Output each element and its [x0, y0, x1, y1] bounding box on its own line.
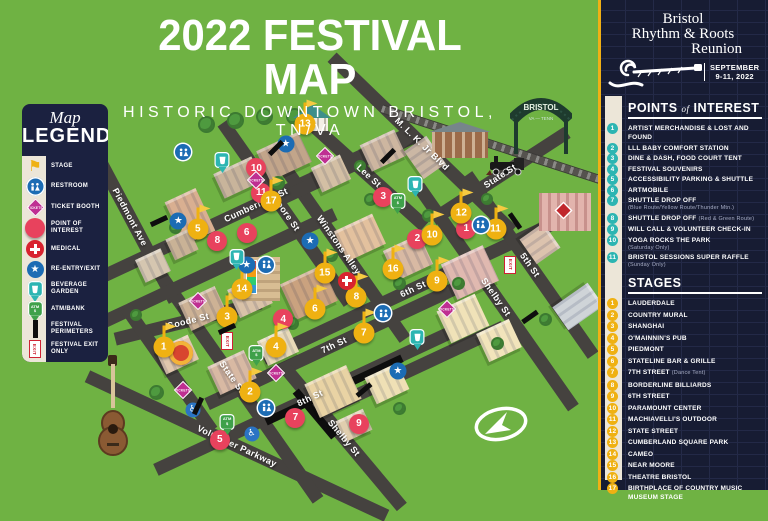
legend-bev-marker: [28, 281, 43, 297]
legend-item-re-entry-exit: ★RE-ENTRY/EXIT: [22, 259, 108, 279]
legend-exit-marker: EXIT: [29, 340, 41, 358]
poi-item-8: 8SHUTTLE DROP OFF (Red & Green Route): [628, 214, 764, 224]
tree: [539, 313, 552, 326]
stage-item-3: 3SHANGHAI: [628, 322, 764, 331]
stage-label: THEATRE BRISTOL: [628, 474, 691, 481]
map-star-marker: ★: [302, 232, 319, 249]
stage-item-8: 8BORDERLINE BILLIARDS: [628, 381, 764, 390]
poi-list: 1ARTIST MERCHANDISE & LOST AND FOUND2LLL…: [628, 124, 764, 269]
map-star-marker: ★: [389, 363, 406, 380]
stage-list: 1LAUDERDALE2COUNTRY MURAL3SHANGHAI4O'MAI…: [628, 299, 764, 502]
map-poi-9-marker: 9: [349, 414, 369, 434]
festival-map-page: { "title": {"line1": "2022 FESTIVAL MAP"…: [0, 0, 768, 490]
atm-icon: ATM$: [24, 301, 46, 317]
rr-icon: [24, 177, 46, 196]
date-days: 9-11, 2022: [710, 72, 759, 81]
stage-number-badge: 14: [607, 449, 618, 460]
stage-item-16: 16THEATRE BRISTOL: [628, 473, 764, 482]
salvation-army-shield: [555, 201, 573, 219]
stage-number-badge: 13: [607, 437, 618, 448]
exit-icon: EXIT: [24, 340, 46, 358]
map-stage-2-marker: 2: [240, 381, 261, 402]
legend-title: Map LEGEND: [22, 104, 108, 154]
stages-header: STAGES: [628, 276, 762, 294]
legend-med-marker: [26, 240, 44, 258]
tree: [491, 337, 504, 350]
stage-label: 7TH STREET: [628, 369, 672, 376]
stage-label: STATE STREET: [628, 428, 678, 435]
logo-line-reunion: Reunion: [598, 42, 768, 57]
tik-icon: TICKETS: [24, 201, 46, 214]
legend-item-beverage-garden: BEVERAGE GARDEN: [22, 279, 108, 299]
points-of-interest-section: POINTS of INTEREST 1ARTIST MERCHANDISE &…: [598, 101, 768, 269]
stage-item-11: 11MACHIAVELLI'S OUTDOOR: [628, 415, 764, 424]
compass-north-arrow: [471, 402, 531, 446]
poi-label: ARTIST MERCHANDISE & LOST AND FOUND: [628, 125, 749, 141]
street-label-7th-st: 7th St: [320, 335, 349, 356]
map-rr-marker: [471, 215, 490, 234]
stage-number-badge: 6: [607, 356, 618, 367]
map-rr-marker: [257, 398, 276, 417]
poi-item-10: 10YOGA ROCKS THE PARK(Saturday Only): [628, 236, 764, 252]
logo-line-bristol: Bristol: [598, 12, 768, 27]
stage-label: MACHIAVELLI'S OUTDOOR: [628, 416, 717, 423]
map-stage-9-marker: 9: [426, 270, 447, 291]
poi-note: (Sunday Only): [628, 262, 764, 269]
poi-number-badge: 6: [607, 185, 618, 196]
stage-number-badge: 3: [607, 321, 618, 332]
poi-number-badge: 2: [607, 143, 618, 154]
legend-item-label: BEVERAGE GARDEN: [46, 282, 106, 296]
legend-item-label: FESTIVAL PERIMETERS: [46, 322, 106, 336]
legend-star-marker: ★: [27, 261, 44, 278]
stage-number-badge: 16: [607, 472, 618, 483]
stage-number-badge: 5: [607, 344, 618, 355]
poi-header-word2: of: [682, 104, 690, 114]
stage-label: CUMBERLAND SQUARE PARK: [628, 439, 728, 446]
poi-number-badge: 1: [607, 123, 618, 134]
svg-text:BRISTOL: BRISTOL: [524, 103, 559, 112]
info-panel: Bristol Rhythm & Roots Reunion SEPTEMBER…: [598, 0, 768, 490]
stage-number-badge: 10: [607, 403, 618, 414]
points-of-interest-header: POINTS of INTEREST: [628, 101, 762, 119]
map-bev-marker: [410, 329, 425, 345]
poi-label: WILL CALL & VOLUNTEER CHECK-IN: [628, 226, 751, 233]
stage-label: O'MAINNIN'S PUB: [628, 335, 687, 342]
stage-item-1: 1LAUDERDALE: [628, 299, 764, 308]
salvation-army-building: [539, 193, 591, 231]
map-stage-8-marker: 8: [346, 287, 367, 308]
stage-item-13: 13CUMBERLAND SQUARE PARK: [628, 438, 764, 447]
poi-inline-note: (Red & Green Route): [698, 216, 754, 222]
map-stage-10-marker: 10: [422, 224, 443, 245]
stage-item-9: 96TH STREET: [628, 392, 764, 401]
map-rr-marker: [257, 255, 276, 274]
stage-number-badge: 11: [607, 414, 618, 425]
stage-item-7: 77TH STREET (Dance Tent): [628, 368, 764, 378]
map-poi-8-marker: 8: [207, 231, 227, 251]
poi-note: (Saturday Only): [628, 245, 764, 252]
map-bar-marker: [521, 310, 539, 324]
poi-label: LLL BABY COMFORT STATION: [628, 145, 729, 152]
map-atm-marker: ATM$: [390, 193, 405, 209]
stage-item-5: 5PIEDMONT: [628, 345, 764, 354]
bev-icon: [24, 281, 46, 297]
svg-text:VA — TENN: VA — TENN: [529, 116, 554, 121]
tree: [452, 277, 465, 290]
stage-item-6: 6STATELINE BAR & GRILLE: [628, 357, 764, 366]
poi-label: ACCESSIBILITY PARKING & SHUTTLE: [628, 176, 753, 183]
poi-label: ARTMOBILE: [628, 187, 668, 194]
poi-label: SHUTTLE DROP OFF: [628, 197, 696, 204]
map-acc-marker: ♿: [244, 426, 259, 441]
legend-item-medical: MEDICAL: [22, 239, 108, 259]
legend-item-label: POINT OF INTEREST: [46, 221, 106, 235]
legend-rr-marker: [26, 177, 45, 196]
stage-item-2: 2COUNTRY MURAL: [628, 311, 764, 320]
legend-item-atm-bank: ATM$ATM/BANK: [22, 299, 108, 319]
map-bev-marker: [229, 249, 244, 265]
stage-label: COUNTRY MURAL: [628, 312, 688, 319]
tree: [130, 309, 142, 321]
poi-item-5: 5ACCESSIBILITY PARKING & SHUTTLE: [628, 175, 764, 184]
legend-item-point-of-interest: POINT OF INTEREST: [22, 217, 108, 239]
poi-item-3: 3DINE & DASH, FOOD COURT TENT: [628, 154, 764, 163]
stage-number-badge: 4: [607, 333, 618, 344]
poi-number-badge: 8: [607, 213, 618, 224]
legend-item-restroom: RESTROOM: [22, 176, 108, 197]
poi-label: SHUTTLE DROP OFF: [628, 215, 698, 222]
tree: [393, 402, 406, 415]
legend-item-label: ATM/BANK: [46, 306, 85, 313]
guitar-landmark: [95, 353, 131, 457]
stage-number-badge: 17: [607, 483, 618, 494]
star-icon: ★: [24, 261, 46, 278]
poi-note: (Blue Route/Yellow Route/Thunder Mtn.): [628, 205, 764, 212]
poi-number-badge: 9: [607, 224, 618, 235]
stage-item-14: 14CAMEO: [628, 450, 764, 459]
map-poi-6-marker: 6: [237, 223, 257, 243]
stage-number-badge: 15: [607, 460, 618, 471]
stage-label: STATELINE BAR & GRILLE: [628, 358, 716, 365]
map-atm-marker: ATM$: [220, 414, 235, 430]
map-star-marker: ★: [170, 212, 187, 229]
bar-icon: [24, 320, 46, 338]
poi-item-2: 2LLL BABY COMFORT STATION: [628, 144, 764, 153]
legend-title-main: LEGEND: [22, 126, 108, 146]
street-label-piedmont-ave: Piedmont Ave: [110, 186, 149, 247]
stage-number-badge: 12: [607, 426, 618, 437]
logo-line-rhythm-roots: Rhythm & Roots: [598, 27, 768, 42]
poi-label: YOGA ROCKS THE PARK: [628, 237, 711, 244]
logo-guitar-doodle: [608, 59, 704, 93]
poi-item-6: 6ARTMOBILE: [628, 186, 764, 195]
legend-atm-marker: ATM$: [28, 301, 43, 317]
legend-poi-marker: [25, 218, 45, 238]
legend-item-label: FESTIVAL EXIT ONLY: [46, 342, 106, 356]
stage-number-badge: 8: [607, 380, 618, 391]
map-poi-7-marker: 7: [285, 408, 305, 428]
map-rr-marker: [174, 143, 193, 162]
poi-icon: [24, 218, 46, 238]
stage-number-badge: 7: [607, 367, 618, 378]
map-stage-17-marker: 17: [261, 190, 282, 211]
stage-item-15: 15NEAR MOORE: [628, 461, 764, 470]
tree: [149, 385, 164, 400]
stage-label: CAMEO: [628, 451, 653, 458]
poi-number-badge: 10: [607, 235, 618, 246]
poi-item-4: 4FESTIVAL SOUVENIRS: [628, 165, 764, 174]
map-legend-panel: Map LEGEND ⚑STAGERESTROOMTICKETSTICKET B…: [22, 104, 108, 362]
date-month: SEPTEMBER: [710, 63, 759, 72]
stage-label: PIEDMONT: [628, 346, 664, 353]
poi-label: DINE & DASH, FOOD COURT TENT: [628, 155, 742, 162]
map-stage-16-marker: 16: [383, 258, 404, 279]
map-med-marker: [338, 272, 356, 290]
legend-bar-marker: [33, 320, 38, 338]
map-bev-marker: [215, 152, 230, 168]
map-stage-6-marker: 6: [304, 299, 325, 320]
map-stage-5-marker: 5: [187, 218, 208, 239]
map-stage-7-marker: 7: [353, 323, 374, 344]
poi-item-1: 1ARTIST MERCHANDISE & LOST AND FOUND: [628, 124, 764, 142]
map-stage-14-marker: 14: [231, 279, 252, 300]
map-exit-marker: EXIT: [221, 332, 233, 350]
med-icon: [24, 240, 46, 258]
poi-number-badge: 5: [607, 174, 618, 185]
poi-item-11: 11BRISTOL SESSIONS SUPER RAFFLE(Sunday O…: [628, 253, 764, 269]
legend-item-label: RESTROOM: [46, 183, 88, 190]
legend-item-label: STAGE: [46, 163, 73, 170]
map-stage-15-marker: 15: [314, 262, 335, 283]
stage-icon: ⚑: [24, 159, 46, 173]
poi-label: FESTIVAL SOUVENIRS: [628, 166, 703, 173]
stage-label: BORDERLINE BILLIARDS: [628, 382, 711, 389]
stage-label: NEAR MOORE: [628, 462, 675, 469]
stage-label: BIRTHPLACE OF COUNTRY MUSIC MUSEUM STAGE: [628, 485, 742, 501]
map-atm-marker: ATM$: [249, 345, 264, 361]
poi-header-word3: INTEREST: [694, 101, 760, 115]
poi-header-word1: POINTS: [628, 101, 678, 115]
stage-number-badge: 2: [607, 310, 618, 321]
building-block: [552, 283, 603, 331]
stage-item-4: 4O'MAINNIN'S PUB: [628, 334, 764, 343]
stage-label: SHANGHAI: [628, 323, 664, 330]
map-exit-marker: EXIT: [504, 256, 516, 274]
poi-item-7: 7SHUTTLE DROP OFF(Blue Route/Yellow Rout…: [628, 196, 764, 212]
street-label-shelby-st: Shelby St: [479, 276, 513, 318]
map-stage-12-marker: 12: [451, 202, 472, 223]
stage-label: 6TH STREET: [628, 393, 670, 400]
legend-title-script: Map: [22, 110, 108, 126]
legend-rows: ⚑STAGERESTROOMTICKETSTICKET BOOTHPOINT O…: [22, 156, 108, 359]
map-stage-1-marker: 1: [153, 337, 174, 358]
stage-item-10: 10PARAMOUNT CENTER: [628, 404, 764, 413]
map-bar-marker: [150, 215, 168, 227]
festival-map-canvas: BRISTOL VA — TENN Cumberland StGoode St7…: [110, 88, 598, 490]
stage-label: PARAMOUNT CENTER: [628, 405, 702, 412]
legend-item-festival-exit-only: EXITFESTIVAL EXIT ONLY: [22, 339, 108, 359]
legend-item-label: TICKET BOOTH: [46, 204, 100, 211]
stage-number-badge: 9: [607, 391, 618, 402]
festival-logo: Bristol Rhythm & Roots Reunion SEPTEMBER…: [598, 0, 768, 93]
map-stage-4-marker: 4: [265, 337, 286, 358]
stage-item-12: 12STATE STREET: [628, 427, 764, 436]
stage-inline-note: (Dance Tent): [672, 370, 706, 376]
page-title: 2022 FESTIVAL MAP: [111, 14, 510, 102]
page-subtitle: HISTORIC DOWNTOWN BRISTOL, TN/VA: [100, 104, 520, 140]
poi-label: BRISTOL SESSIONS SUPER RAFFLE: [628, 254, 749, 261]
legend-item-festival-perimeters: FESTIVAL PERIMETERS: [22, 319, 108, 339]
poi-number-badge: 4: [607, 164, 618, 175]
legend-item-label: MEDICAL: [46, 246, 80, 253]
poi-item-9: 9WILL CALL & VOLUNTEER CHECK-IN: [628, 225, 764, 234]
map-rr-marker: [374, 304, 393, 323]
stages-section: STAGES 1LAUDERDALE2COUNTRY MURAL3SHANGHA…: [598, 276, 768, 502]
poi-number-badge: 7: [607, 195, 618, 206]
stage-label: LAUDERDALE: [628, 300, 675, 307]
stage-flag-icon: ⚑: [28, 159, 41, 173]
tree: [481, 193, 493, 205]
legend-item-stage: ⚑STAGE: [22, 156, 108, 176]
poi-number-badge: 3: [607, 153, 618, 164]
map-bev-marker: [408, 176, 423, 192]
map-title-block: 2022 FESTIVAL MAP HISTORIC DOWNTOWN BRIS…: [100, 14, 520, 140]
stage-item-17: 17BIRTHPLACE OF COUNTRY MUSIC MUSEUM STA…: [628, 484, 764, 502]
legend-tik-marker: TICKETS: [26, 198, 44, 216]
poi-number-badge: 11: [607, 252, 618, 263]
stage-number-badge: 1: [607, 298, 618, 309]
legend-item-label: RE-ENTRY/EXIT: [46, 266, 100, 273]
festival-dates: SEPTEMBER 9-11, 2022: [704, 63, 759, 81]
legend-item-ticket-booth: TICKETSTICKET BOOTH: [22, 197, 108, 217]
